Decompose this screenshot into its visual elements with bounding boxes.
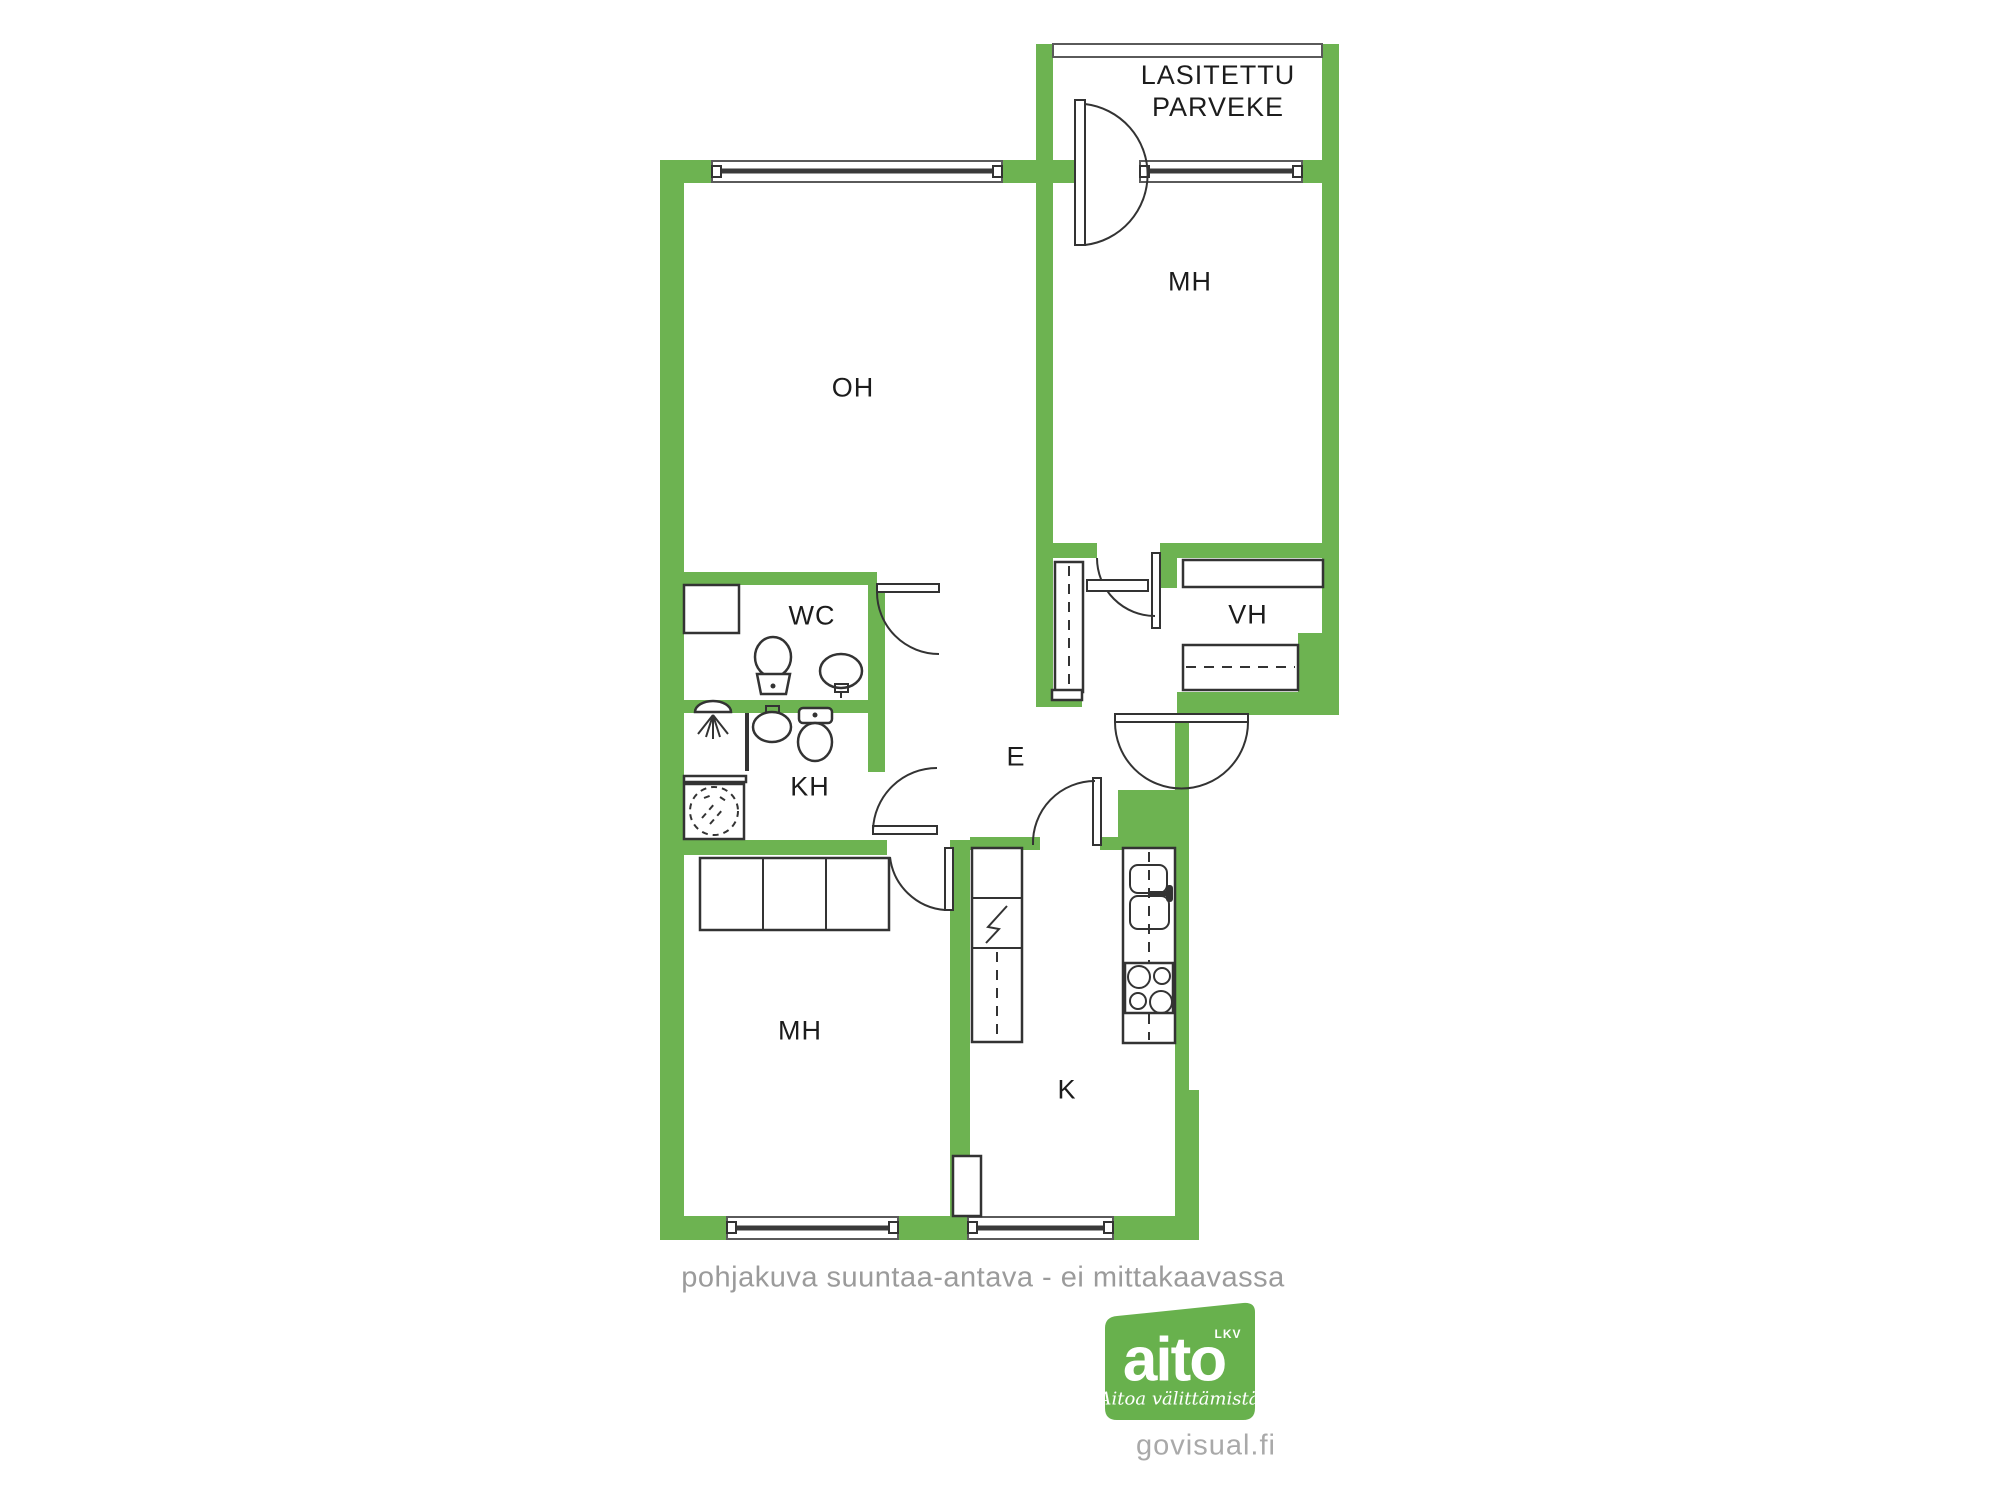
vh-shelf	[1183, 560, 1323, 587]
stove-icon	[1125, 963, 1173, 1013]
logo-brand-text: aito	[1123, 1325, 1225, 1396]
balcony-label: LASITETTU PARVEKE	[1141, 60, 1296, 124]
kitchen-low-cabinet	[953, 1156, 981, 1216]
watermark-text: govisual.fi	[1136, 1430, 1276, 1463]
room-label-bedroom-top: MH	[1168, 267, 1212, 298]
bathroom-door	[873, 768, 937, 834]
wc-cabinet	[684, 585, 739, 633]
shower-icon	[695, 700, 731, 739]
balcony-label-line2: PARVEKE	[1141, 92, 1296, 124]
bedroom-bottom-door	[890, 848, 953, 910]
room-label-wc: WC	[789, 601, 836, 632]
room-label-bathroom: KH	[790, 772, 830, 803]
shower-partition	[745, 713, 749, 771]
wardrobe-bottom-bedroom	[700, 858, 889, 930]
room-label-living: OH	[832, 373, 875, 404]
fridge-icon	[972, 848, 1022, 1042]
wc-door	[877, 584, 939, 654]
balcony-door	[1075, 100, 1148, 245]
bathroom-shelf	[684, 776, 746, 782]
bedroom-top-door	[1087, 553, 1160, 628]
fixtures	[684, 560, 1323, 1216]
bedroom-bottom-window	[727, 1217, 898, 1239]
doors	[873, 100, 1248, 910]
living-room-window	[712, 161, 1002, 182]
logo-suffix-text: LKV	[1215, 1327, 1242, 1341]
bedroom-top-window	[1140, 161, 1302, 182]
disclaimer-text: pohjakuva suuntaa-antava - ei mittakaava…	[681, 1262, 1284, 1295]
hallway-closet	[1055, 562, 1083, 692]
logo-tagline-text: Aitoa välittämistä	[1099, 1389, 1260, 1410]
room-label-bedroom-bottom: MH	[778, 1016, 822, 1047]
kitchen-door	[1033, 778, 1101, 845]
room-label-closet: VH	[1228, 600, 1268, 631]
vh-closet	[1183, 645, 1298, 690]
windows	[712, 44, 1322, 1239]
bathroom-toilet-icon	[798, 708, 832, 761]
wc-sink-icon	[820, 654, 862, 698]
balcony-label-line1: LASITETTU	[1141, 60, 1296, 92]
balcony-glazing	[1053, 44, 1322, 57]
room-label-entry: E	[1006, 742, 1025, 773]
wc-toilet-icon	[755, 637, 791, 694]
floor-plan-page: LASITETTU PARVEKE OH MH WC KH VH E MH K …	[0, 0, 2000, 1500]
room-label-kitchen: K	[1057, 1075, 1076, 1106]
kitchen-window	[968, 1217, 1113, 1239]
hallway-threshold	[1052, 690, 1082, 700]
washing-machine-icon	[684, 784, 744, 839]
